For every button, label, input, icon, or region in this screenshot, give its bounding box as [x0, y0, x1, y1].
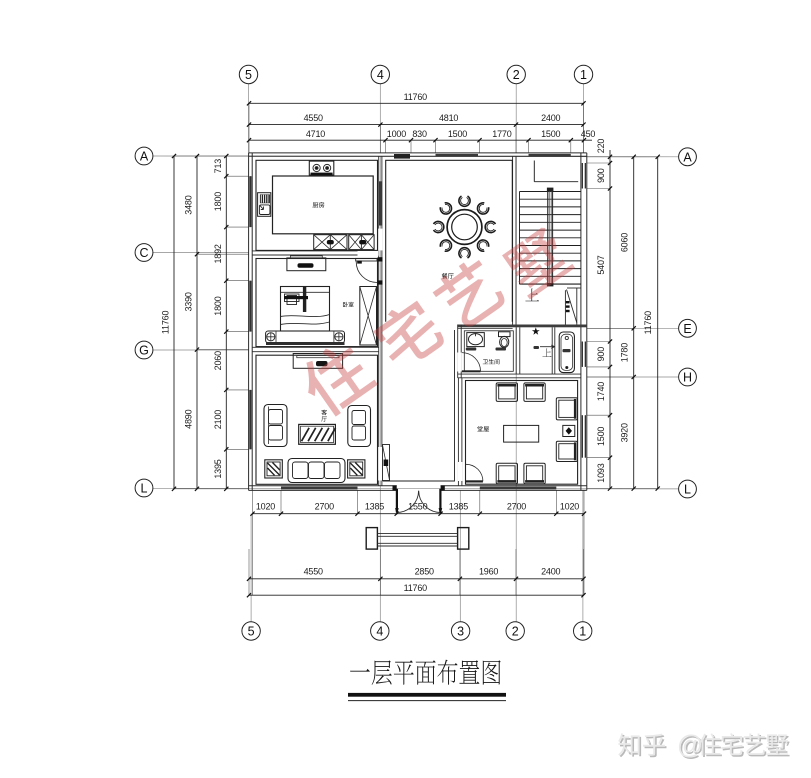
svg-text:5407: 5407: [596, 255, 606, 274]
svg-text:A: A: [140, 150, 149, 164]
svg-text:4550: 4550: [304, 113, 323, 123]
svg-text:1500: 1500: [596, 427, 606, 446]
svg-text:2: 2: [512, 625, 519, 639]
svg-text:830: 830: [412, 129, 427, 139]
svg-text:4: 4: [376, 625, 383, 639]
svg-text:1770: 1770: [492, 129, 511, 139]
svg-text:2700: 2700: [507, 501, 526, 511]
svg-text:900: 900: [596, 168, 606, 183]
svg-text:713: 713: [213, 159, 223, 174]
svg-text:1800: 1800: [213, 296, 223, 315]
svg-text:4: 4: [377, 68, 384, 82]
svg-text:1960: 1960: [479, 566, 498, 576]
svg-text:2: 2: [513, 68, 520, 82]
svg-text:2850: 2850: [415, 566, 434, 576]
svg-text:900: 900: [596, 347, 606, 362]
svg-text:1093: 1093: [596, 463, 606, 482]
svg-text:1020: 1020: [560, 501, 579, 511]
svg-text:4810: 4810: [439, 113, 458, 123]
svg-text:11760: 11760: [404, 92, 428, 102]
svg-text:1020: 1020: [256, 501, 275, 511]
svg-text:1385: 1385: [365, 501, 384, 511]
svg-text:H: H: [683, 371, 692, 385]
svg-text:G: G: [139, 344, 149, 358]
svg-text:1395: 1395: [213, 459, 223, 478]
svg-text:1800: 1800: [213, 192, 223, 211]
svg-text:6060: 6060: [620, 233, 630, 252]
svg-text:1385: 1385: [449, 501, 468, 511]
svg-text:L: L: [684, 483, 691, 497]
svg-text:1740: 1740: [596, 382, 606, 401]
svg-text:4890: 4890: [184, 409, 194, 428]
svg-text:2700: 2700: [315, 501, 334, 511]
svg-text:220: 220: [596, 139, 606, 154]
svg-text:2060: 2060: [213, 351, 223, 370]
svg-text:1: 1: [580, 68, 587, 82]
svg-text:E: E: [683, 322, 691, 336]
svg-text:3480: 3480: [184, 195, 194, 214]
svg-text:3390: 3390: [184, 292, 194, 311]
svg-text:450: 450: [581, 129, 596, 139]
svg-text:A: A: [683, 150, 692, 164]
svg-text:1500: 1500: [448, 129, 467, 139]
svg-text:1550: 1550: [408, 501, 427, 511]
svg-text:3920: 3920: [620, 423, 630, 442]
svg-text:1780: 1780: [620, 343, 630, 362]
svg-text:1500: 1500: [541, 129, 560, 139]
svg-text:4710: 4710: [306, 129, 325, 139]
svg-text:2400: 2400: [541, 113, 560, 123]
svg-text:5: 5: [245, 68, 252, 82]
svg-text:3: 3: [457, 625, 464, 639]
svg-text:1: 1: [579, 625, 586, 639]
svg-text:1000: 1000: [387, 129, 406, 139]
svg-text:11760: 11760: [643, 311, 653, 335]
svg-text:2100: 2100: [213, 410, 223, 429]
svg-text:5: 5: [248, 625, 255, 639]
svg-text:4550: 4550: [304, 566, 323, 576]
svg-text:1892: 1892: [213, 244, 223, 263]
svg-text:C: C: [139, 246, 148, 260]
svg-text:L: L: [141, 482, 148, 496]
svg-text:11760: 11760: [404, 583, 428, 593]
svg-text:2400: 2400: [541, 566, 560, 576]
svg-text:11760: 11760: [161, 311, 171, 335]
